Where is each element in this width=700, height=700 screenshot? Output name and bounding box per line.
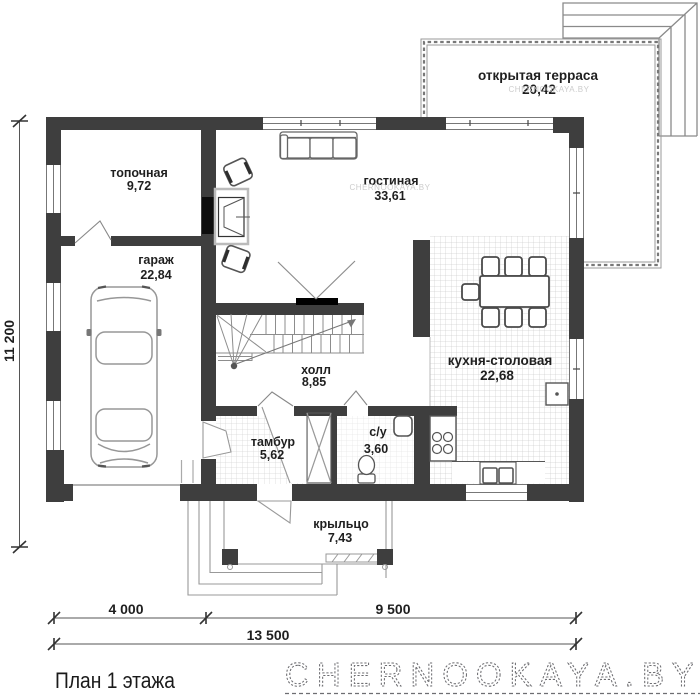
svg-text:План 1 этажа: План 1 этажа (55, 668, 176, 693)
svg-text:9,72: 9,72 (127, 179, 151, 193)
svg-text:тамбур: тамбур (251, 435, 295, 449)
svg-text:крыльцо: крыльцо (313, 517, 369, 531)
svg-text:открытая терраса: открытая терраса (478, 68, 599, 83)
svg-text:13 500: 13 500 (247, 627, 290, 643)
svg-text:CHERNOOKAYA.BY: CHERNOOKAYA.BY (509, 85, 590, 94)
svg-text:7,43: 7,43 (328, 531, 352, 545)
svg-text:8,85: 8,85 (302, 375, 326, 389)
svg-text:9 500: 9 500 (375, 601, 410, 617)
svg-text:кухня-столовая: кухня-столовая (448, 353, 552, 368)
svg-text:22,68: 22,68 (480, 368, 514, 383)
svg-text:5,62: 5,62 (260, 448, 284, 462)
svg-text:CHERNOOKAYA.BY: CHERNOOKAYA.BY (350, 183, 431, 192)
svg-text:22,84: 22,84 (140, 268, 171, 282)
svg-text:4 000: 4 000 (108, 601, 143, 617)
svg-text:11 200: 11 200 (1, 320, 17, 362)
svg-text:гараж: гараж (138, 253, 174, 267)
svg-text:топочная: топочная (110, 166, 168, 180)
svg-text:с/у: с/у (369, 425, 386, 439)
svg-text:3,60: 3,60 (364, 442, 388, 456)
